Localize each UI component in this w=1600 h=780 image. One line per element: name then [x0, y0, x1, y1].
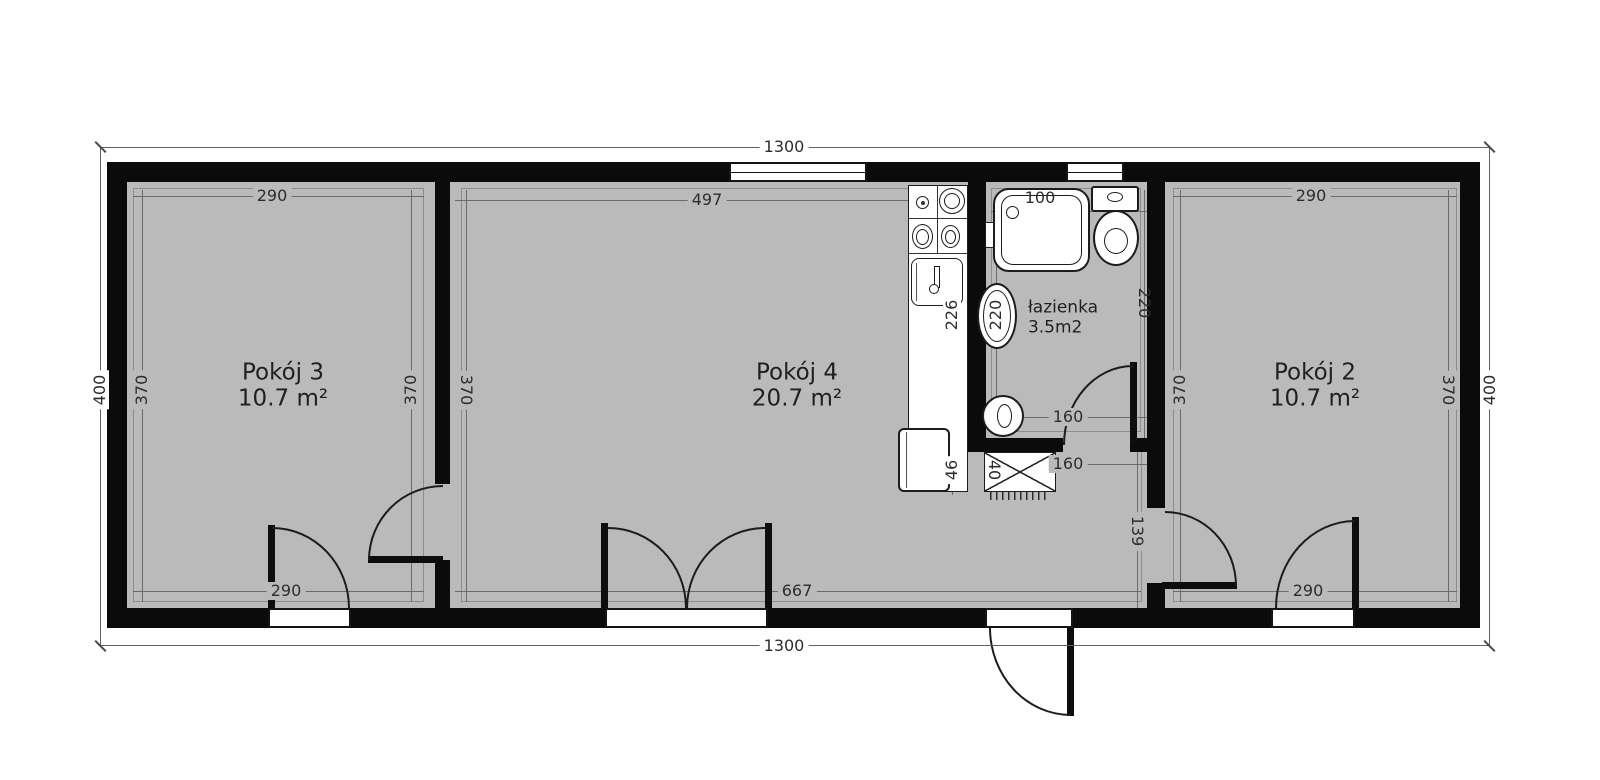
dim-left-overall: 400: [91, 371, 109, 410]
dim-p3-bottom: 290: [267, 582, 306, 600]
dim-shaft-depth: 40: [986, 460, 1002, 480]
dim-p4-bottom: 667: [778, 582, 817, 600]
dim-p2-left: 370: [1171, 371, 1189, 410]
room-label-pokoj2: Pokój 2 10.7 m²: [1270, 360, 1360, 413]
room-label-pokoj3: Pokój 3 10.7 m²: [238, 360, 328, 413]
room-label-pokoj4: Pokój 4 20.7 m²: [752, 360, 842, 413]
room-name: łazienka: [1028, 298, 1098, 318]
dim-hall-width: 160: [1049, 455, 1088, 473]
dim-bath-width: 160: [1049, 408, 1088, 426]
room-area: 10.7 m²: [238, 386, 328, 412]
dim-bottom-overall: 1300: [760, 637, 809, 655]
dim-top-overall: 1300: [760, 138, 809, 156]
dim-p2-bottom: 290: [1289, 582, 1328, 600]
dim-hall-height: 139: [1128, 512, 1146, 551]
dim-p4-left: 370: [457, 371, 475, 410]
dim-p2-right: 370: [1439, 371, 1457, 410]
dim-p3-top: 290: [253, 187, 292, 205]
room-area: 3.5m2: [1028, 318, 1098, 338]
dim-counter-length: 226: [943, 296, 961, 335]
floor-plan: 1300 1300 400 400 290 370 370 290 497 37…: [0, 0, 1600, 780]
dim-p2-top: 290: [1292, 187, 1331, 205]
dim-bath-top: 100: [1025, 190, 1056, 206]
dim-counter-depth: 46: [943, 456, 961, 484]
room-area: 10.7 m²: [1270, 386, 1360, 412]
room-name: Pokój 3: [238, 360, 328, 386]
room-label-lazienka: łazienka 3.5m2: [1028, 298, 1098, 337]
room-name: Pokój 4: [752, 360, 842, 386]
dim-bath-left: 220: [988, 300, 1004, 331]
dim-p4-top: 497: [688, 191, 727, 209]
dim-right-overall: 400: [1481, 371, 1499, 410]
room-name: Pokój 2: [1270, 360, 1360, 386]
dim-bath-right: 220: [1136, 288, 1152, 319]
dim-p3-left: 370: [133, 371, 151, 410]
room-area: 20.7 m²: [752, 386, 842, 412]
dim-p3-right: 370: [402, 371, 420, 410]
